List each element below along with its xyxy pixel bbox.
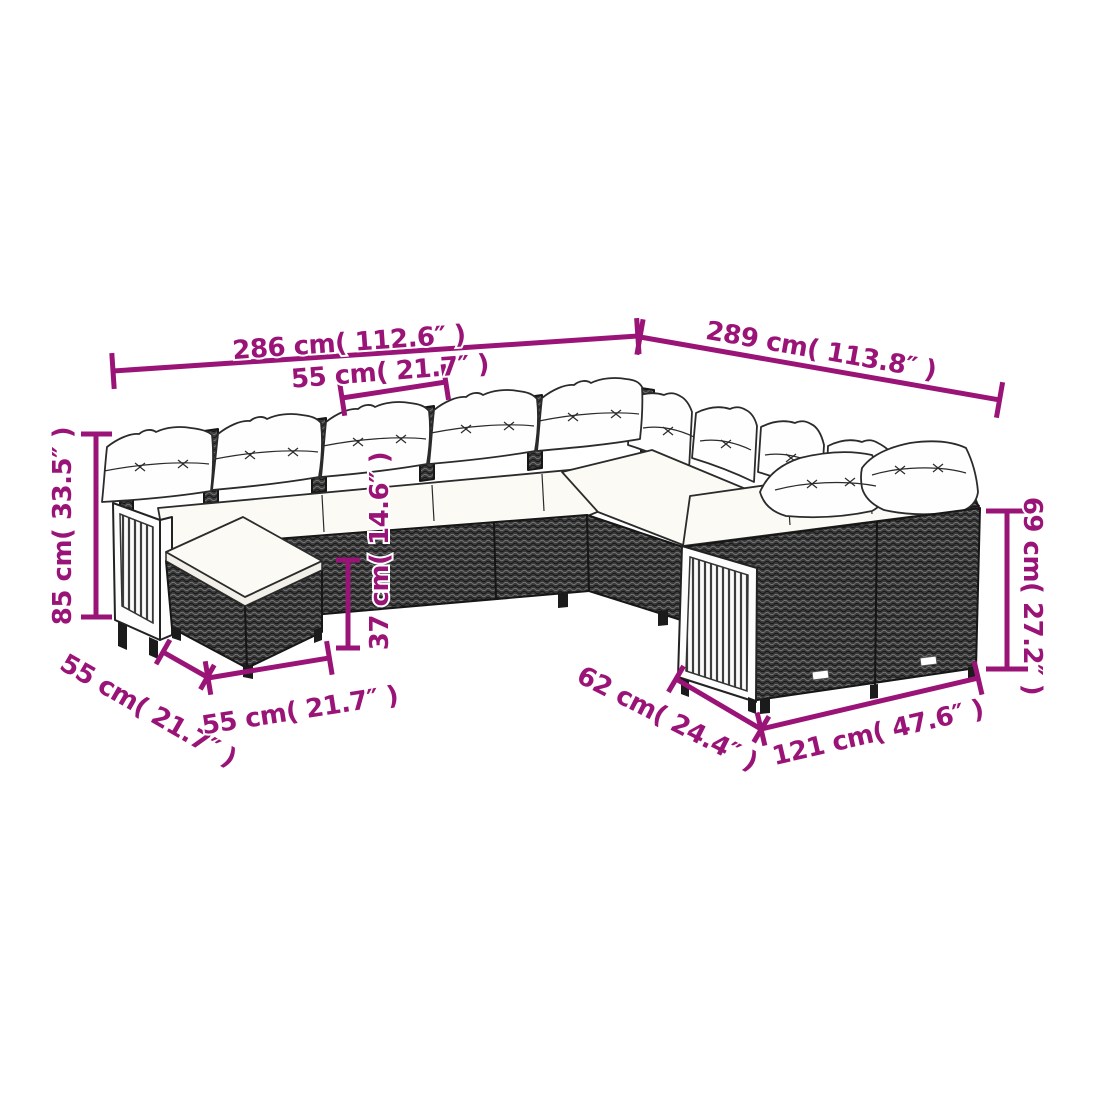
wood-panel-left-arm	[113, 503, 172, 659]
dim-label-seat-height: 37 cm( 14.6″ )	[365, 452, 395, 650]
furniture-dimension-diagram: 286 cm( 112.6″ ) 289 cm( 113.8″ ) 55 cm(…	[0, 0, 1100, 1100]
dim-stool-depth: 55 cm( 21.7″ )	[55, 640, 242, 774]
clip	[812, 670, 829, 680]
dim-label-right-module-width: 121 cm( 47.6″ )	[769, 694, 986, 772]
dim-label-backrest-height: 69 cm( 27.2″ )	[1017, 497, 1047, 695]
dim-label-total-width-right: 289 cm( 113.8″ )	[703, 316, 938, 386]
dim-label-stool-width: 55 cm( 21.7″ )	[200, 681, 401, 742]
clip	[920, 656, 937, 666]
sofa-illustration	[102, 378, 980, 714]
dim-label-overall-height: 85 cm( 33.5″ )	[48, 427, 78, 625]
dim-backrest-height: 69 cm( 27.2″ )	[986, 497, 1047, 695]
dim-total-width-right: 289 cm( 113.8″ )	[637, 316, 1003, 418]
dim-overall-height: 85 cm( 33.5″ )	[48, 427, 112, 625]
diagram-canvas: 286 cm( 112.6″ ) 289 cm( 113.8″ ) 55 cm(…	[0, 0, 1100, 1100]
